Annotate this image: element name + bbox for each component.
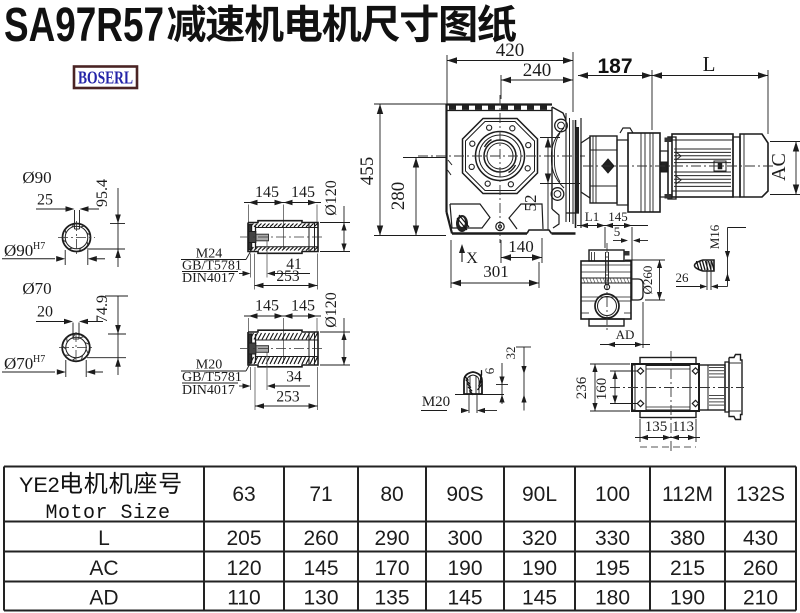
svg-text:112M: 112M — [662, 483, 713, 506]
svg-text:Ø70: Ø70 — [4, 354, 33, 373]
svg-text:110: 110 — [227, 587, 260, 610]
svg-text:34: 34 — [286, 369, 302, 386]
svg-text:180: 180 — [595, 587, 630, 610]
svg-text:90L: 90L — [522, 483, 557, 506]
svg-text:52: 52 — [521, 195, 540, 212]
svg-text:210: 210 — [743, 587, 778, 610]
svg-text:Ø90: Ø90 — [4, 241, 33, 260]
svg-text:135: 135 — [645, 419, 668, 435]
svg-text:290: 290 — [374, 527, 409, 550]
svg-text:380: 380 — [670, 527, 705, 550]
svg-text:205: 205 — [226, 527, 261, 550]
svg-text:187: 187 — [597, 55, 632, 78]
svg-text:AD: AD — [616, 327, 635, 342]
svg-text:160: 160 — [594, 378, 610, 401]
svg-text:320: 320 — [522, 527, 557, 550]
svg-text:280: 280 — [388, 182, 409, 211]
svg-text:145: 145 — [303, 557, 338, 580]
svg-text:300: 300 — [447, 527, 482, 550]
svg-text:145: 145 — [291, 184, 315, 201]
svg-text:430: 430 — [743, 527, 778, 550]
svg-text:Ø120: Ø120 — [323, 180, 340, 216]
svg-text:120: 120 — [226, 557, 261, 580]
svg-text:145: 145 — [608, 209, 628, 224]
svg-text:26: 26 — [676, 270, 690, 285]
svg-text:170: 170 — [374, 557, 409, 580]
svg-text:63: 63 — [232, 483, 255, 506]
svg-text:80: 80 — [380, 483, 403, 506]
svg-text:M16: M16 — [707, 224, 722, 249]
svg-text:71: 71 — [309, 483, 332, 506]
svg-text:145: 145 — [255, 184, 279, 201]
svg-text:95.4: 95.4 — [94, 179, 111, 207]
svg-text:145: 145 — [522, 587, 557, 610]
svg-text:6: 6 — [482, 367, 497, 374]
svg-text:145: 145 — [447, 587, 482, 610]
svg-text:140: 140 — [508, 237, 534, 256]
svg-text:L1: L1 — [585, 209, 599, 224]
svg-text:145: 145 — [291, 298, 315, 315]
svg-text:L: L — [703, 52, 716, 76]
svg-text:190: 190 — [447, 557, 482, 580]
svg-text:DIN4017: DIN4017 — [182, 383, 235, 398]
svg-text:253: 253 — [276, 389, 300, 406]
svg-text:260: 260 — [303, 527, 338, 550]
svg-text:420: 420 — [496, 40, 525, 61]
svg-text:195: 195 — [595, 557, 630, 580]
svg-text:Motor Size: Motor Size — [45, 502, 170, 525]
svg-text:L: L — [98, 527, 110, 550]
svg-text:100: 100 — [595, 483, 630, 506]
svg-text:AC: AC — [768, 153, 790, 181]
svg-text:M20: M20 — [422, 394, 450, 410]
svg-text:Ø120: Ø120 — [323, 292, 340, 328]
svg-text:H7: H7 — [33, 241, 45, 252]
svg-text:301: 301 — [483, 262, 509, 281]
svg-text:215: 215 — [670, 557, 705, 580]
svg-text:90S: 90S — [446, 483, 483, 506]
svg-text:74.9: 74.9 — [94, 295, 111, 323]
svg-text:YE2: YE2 — [19, 473, 60, 497]
svg-text:DIN4017: DIN4017 — [182, 271, 235, 286]
svg-text:190: 190 — [670, 587, 705, 610]
svg-text:236: 236 — [574, 376, 590, 399]
svg-text:113: 113 — [672, 419, 694, 435]
svg-text:240: 240 — [523, 60, 552, 81]
svg-text:135: 135 — [374, 587, 409, 610]
svg-text:SA97R57: SA97R57 — [4, 0, 164, 52]
svg-text:260: 260 — [743, 557, 778, 580]
svg-text:20: 20 — [37, 304, 53, 321]
svg-text:253: 253 — [276, 268, 300, 285]
svg-text:145: 145 — [255, 298, 279, 315]
svg-text:25: 25 — [37, 192, 53, 209]
svg-text:X: X — [466, 250, 478, 267]
svg-text:H7: H7 — [33, 354, 45, 365]
svg-text:BOSERL: BOSERL — [78, 68, 133, 88]
svg-text:32: 32 — [503, 347, 518, 360]
svg-text:132S: 132S — [736, 483, 785, 506]
svg-text:330: 330 — [595, 527, 630, 550]
svg-text:Ø90: Ø90 — [22, 168, 51, 187]
svg-text:190: 190 — [522, 557, 557, 580]
svg-text:Ø70: Ø70 — [22, 279, 51, 298]
svg-text:Ø260: Ø260 — [640, 266, 655, 295]
svg-text:455: 455 — [357, 157, 378, 186]
svg-text:5: 5 — [614, 224, 621, 239]
svg-text:AD: AD — [89, 587, 118, 610]
svg-text:130: 130 — [303, 587, 338, 610]
svg-text:AC: AC — [89, 557, 118, 580]
